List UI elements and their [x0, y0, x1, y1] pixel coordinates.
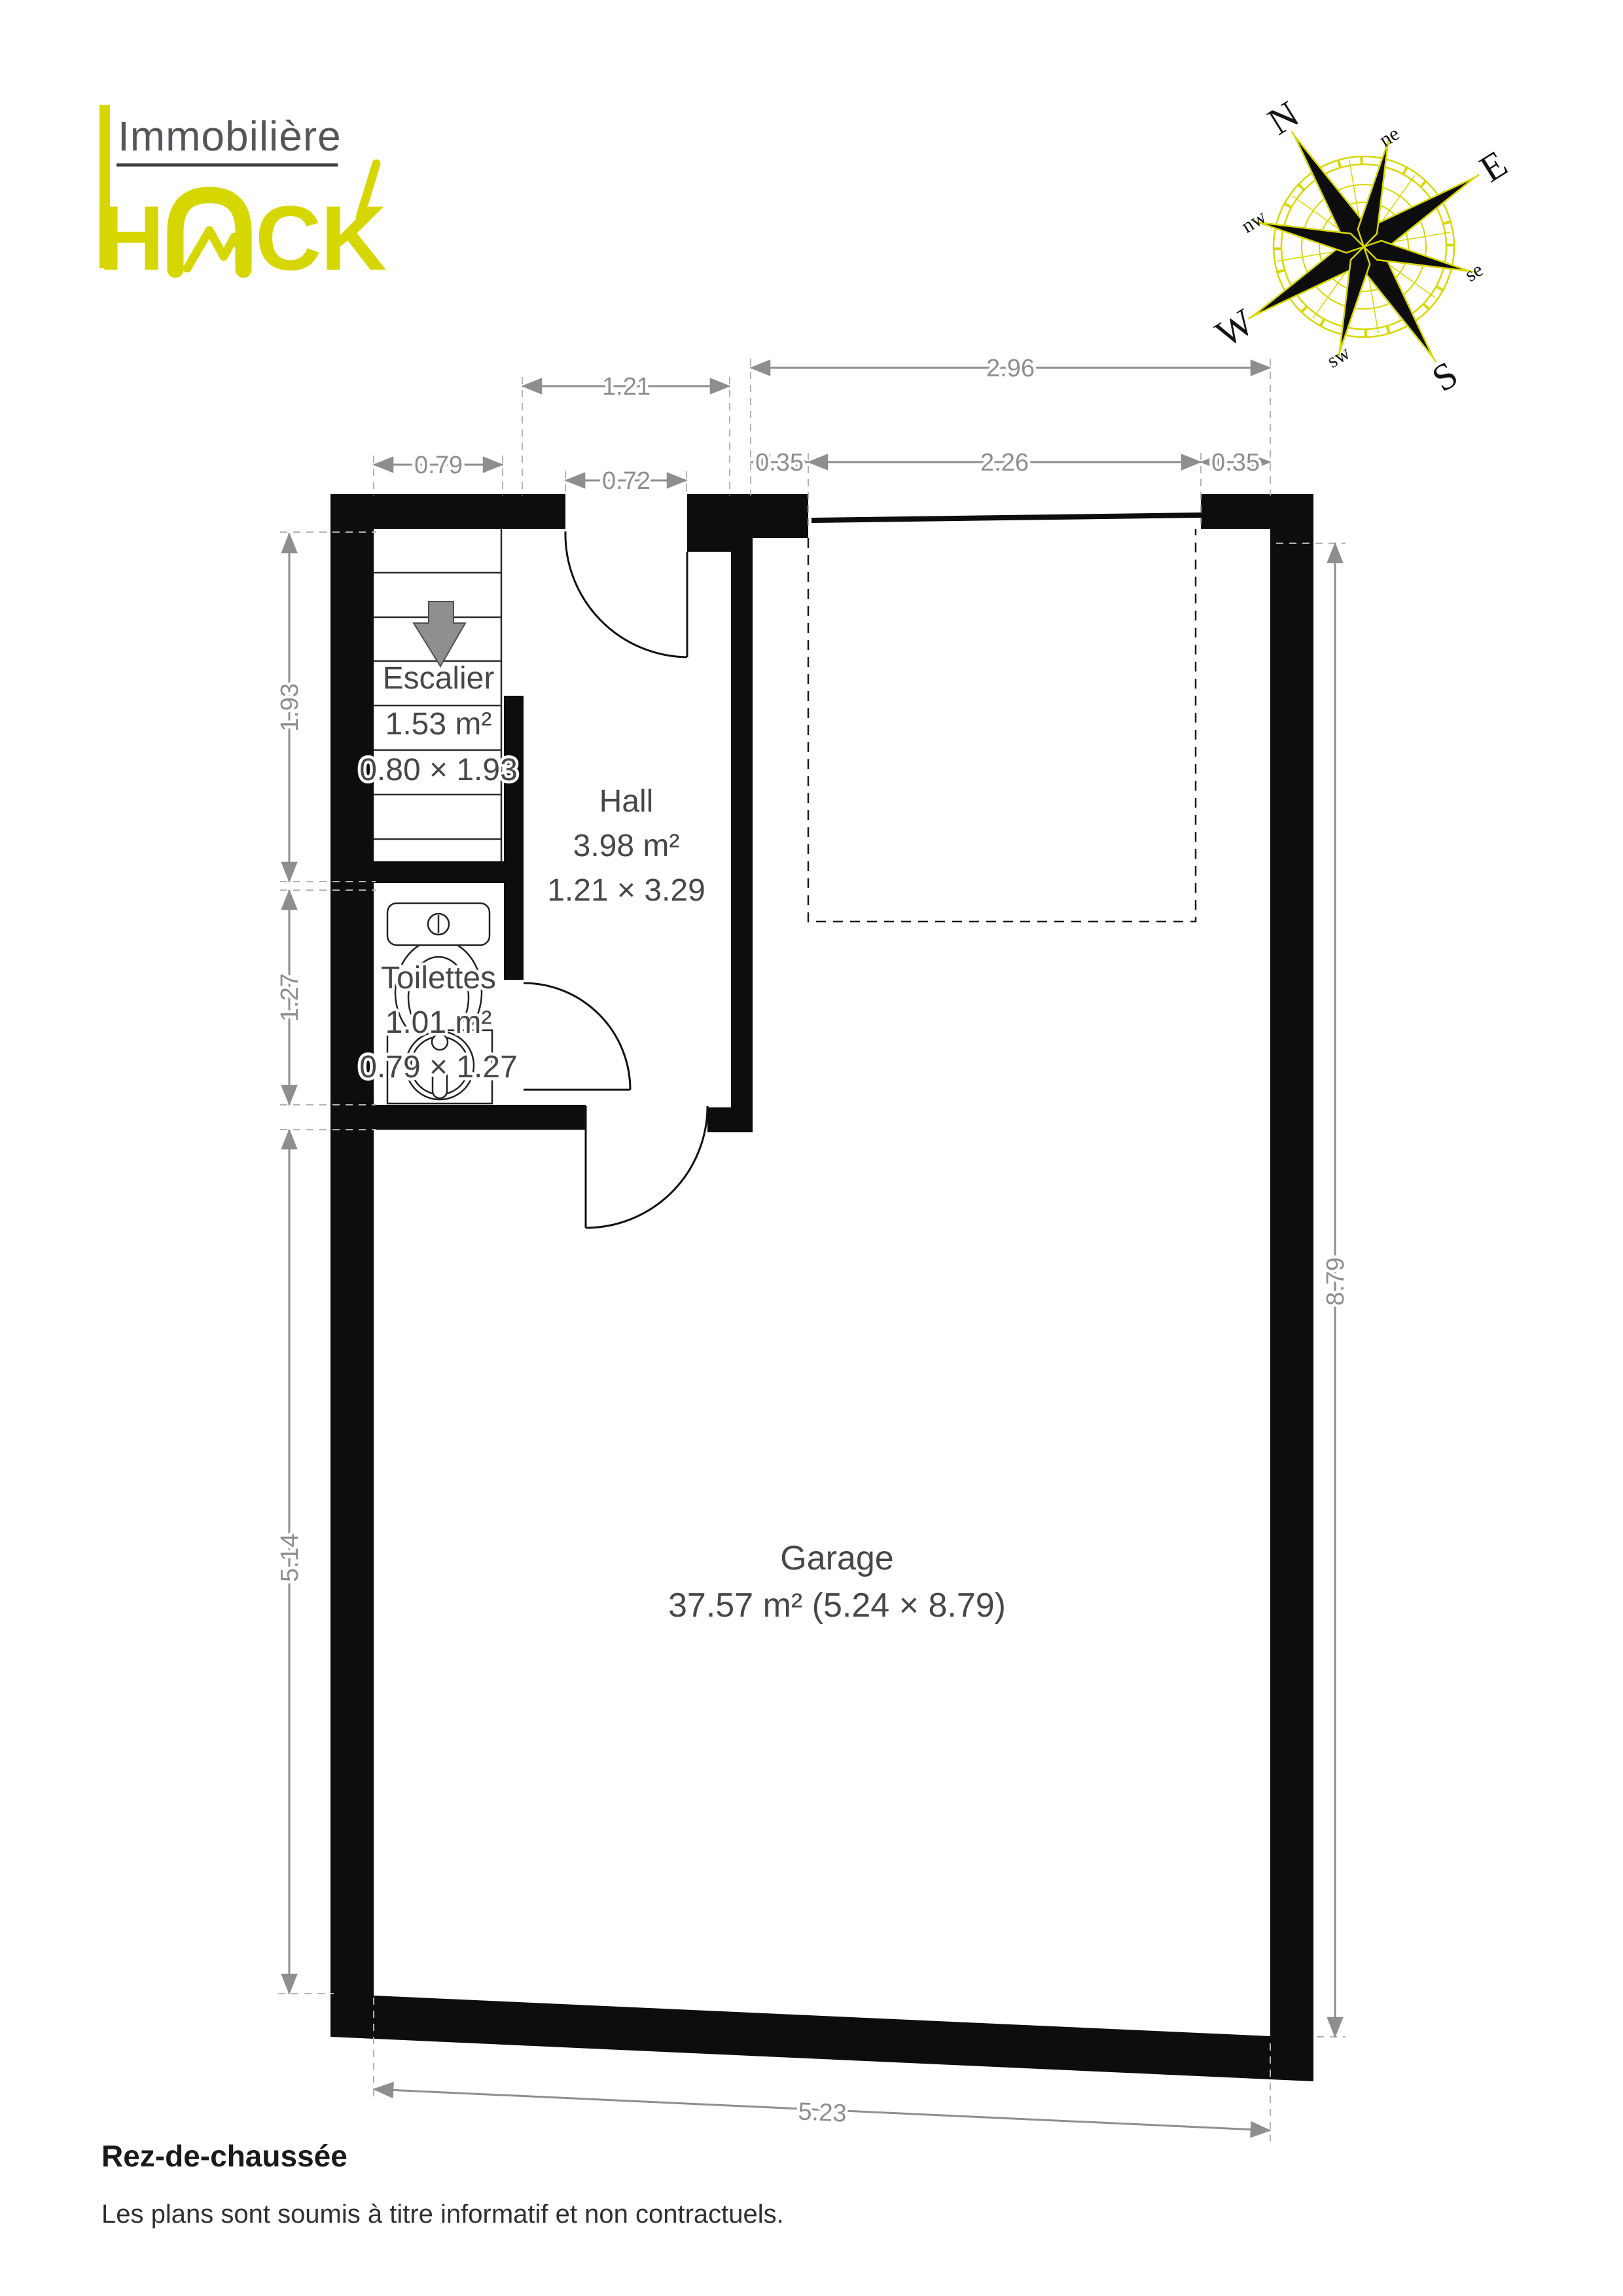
- dim-right-height: 8.79: [1322, 543, 1349, 2037]
- floor-title: Rez-de-chaussée: [101, 2139, 348, 2173]
- dim-entry-door: 0.72: [565, 467, 687, 495]
- wall-pier-left: [751, 494, 808, 538]
- logo-letter-h: H: [98, 187, 164, 289]
- compass-label-se: se: [1461, 258, 1487, 286]
- dim-stair-width: 0.79: [374, 452, 503, 479]
- garage-door-swing-area: [808, 529, 1196, 922]
- svg-text:3.98 m²: 3.98 m²: [573, 829, 680, 863]
- svg-text:2.96: 2.96: [986, 355, 1035, 382]
- garage-door: [808, 515, 1201, 922]
- dim-pier-right: 0.35: [1201, 449, 1270, 476]
- svg-text:Escalier: Escalier: [383, 661, 495, 696]
- svg-text:1.21: 1.21: [602, 373, 651, 401]
- svg-text:Garage: Garage: [780, 1539, 893, 1577]
- svg-text:37.57 m² (5.24 × 8.79): 37.57 m² (5.24 × 8.79): [668, 1587, 1006, 1624]
- compass-label-nw: nw: [1237, 205, 1270, 238]
- logo-house-icon: [175, 195, 243, 270]
- compass-blades: [1183, 66, 1544, 427]
- svg-text:Hall: Hall: [599, 784, 654, 819]
- wall-bottom: [330, 1994, 1313, 2081]
- svg-text:0.35: 0.35: [1211, 449, 1260, 476]
- disclaimer: Les plans sont soumis à titre informatif…: [101, 2200, 784, 2229]
- svg-text:0.72: 0.72: [602, 467, 651, 495]
- compass-label-ne: ne: [1375, 122, 1403, 151]
- svg-text:5.23: 5.23: [798, 2098, 847, 2127]
- wall-right: [1270, 494, 1313, 2060]
- doors: [524, 515, 1201, 1228]
- wall-stair-hall: [504, 696, 524, 883]
- compass-label-sw: sw: [1323, 340, 1354, 372]
- dim-wc-length: 1.27: [276, 890, 304, 1105]
- svg-text:1.21 × 3.29: 1.21 × 3.29: [547, 873, 705, 908]
- svg-text:0.80 × 1.93: 0.80 × 1.93: [359, 753, 518, 787]
- room-label-escalier: Escalier 1.53 m² 0.80 × 1.93: [359, 661, 518, 787]
- svg-text:1.01 m²: 1.01 m²: [385, 1005, 492, 1040]
- logo: Immobilière H C K: [98, 105, 387, 289]
- wc-door: [524, 983, 630, 1090]
- svg-text:1.27: 1.27: [276, 973, 304, 1022]
- dim-bottom-width: 5.23: [374, 2089, 1270, 2130]
- svg-text:5.14: 5.14: [276, 1534, 304, 1582]
- compass-rose: N E S W ne se sw nw: [1128, 12, 1596, 484]
- logo-letter-c: C: [255, 187, 321, 289]
- wall-stair-wc: [374, 861, 524, 883]
- compass-label-south: S: [1425, 353, 1465, 400]
- svg-text:Toilettes: Toilettes: [381, 961, 496, 996]
- svg-text:0.35: 0.35: [755, 449, 804, 476]
- svg-text:1.53 m²: 1.53 m²: [385, 707, 492, 742]
- logo-company-name: Immobilière: [118, 113, 342, 160]
- dim-pier-left: 0.35: [751, 449, 808, 476]
- svg-text:0.79 × 1.27: 0.79 × 1.27: [359, 1050, 518, 1085]
- room-labels: Escalier 1.53 m² 0.80 × 1.93 Hall 3.98 m…: [359, 661, 1006, 1624]
- svg-text:2.26: 2.26: [980, 449, 1029, 476]
- compass-label-east: E: [1472, 142, 1514, 190]
- dim-garage-door: 2.26: [808, 449, 1201, 476]
- svg-text:0.79: 0.79: [414, 452, 463, 479]
- compass-label-north: N: [1260, 92, 1306, 143]
- room-label-toilettes: Toilettes 1.01 m² 0.79 × 1.27: [359, 961, 518, 1085]
- entry-door: [565, 531, 687, 657]
- wall-wc-right: [504, 883, 524, 980]
- wall-left: [330, 494, 374, 2037]
- wall-hall-garage: [731, 529, 753, 1132]
- svg-text:8.79: 8.79: [1322, 1257, 1349, 1306]
- hall-garage-door: [586, 1106, 707, 1228]
- dim-stair-length: 1.93: [276, 533, 304, 882]
- dim-top-wall: 2.96: [751, 355, 1270, 382]
- svg-text:1.93: 1.93: [276, 683, 304, 732]
- stair-direction-arrow-icon: [414, 601, 465, 666]
- logo-letter-k: K: [321, 187, 387, 289]
- dim-left-lower: 5.14: [276, 1130, 304, 1994]
- dim-hall-width: 1.21: [522, 373, 730, 401]
- wall-wc-bottom: [330, 1105, 586, 1130]
- room-label-garage: Garage 37.57 m² (5.24 × 8.79): [668, 1539, 1006, 1624]
- wall-top-left: [330, 494, 565, 529]
- room-label-hall: Hall 3.98 m² 1.21 × 3.29: [547, 784, 705, 908]
- compass-label-west: W: [1208, 300, 1261, 355]
- footer: Rez-de-chaussée Les plans sont soumis à …: [101, 2139, 784, 2229]
- floor-plan-page: Immobilière H C K: [0, 0, 1623, 2296]
